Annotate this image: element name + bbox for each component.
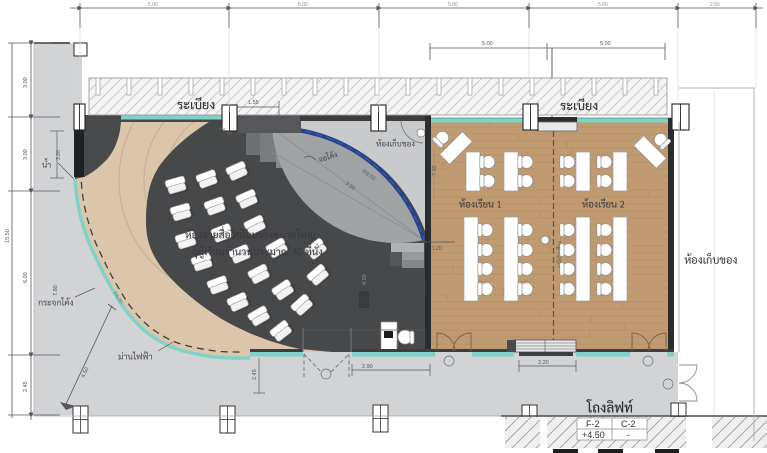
svg-text:6.00: 6.00 [23,272,29,283]
svg-text:2.55: 2.55 [710,2,720,8]
svg-text:1.20: 1.20 [432,246,442,252]
svg-text:7.00: 7.00 [432,165,438,176]
svg-text:2.45: 2.45 [23,381,29,392]
svg-text:3.00: 3.00 [23,77,29,88]
svg-text:15.50: 15.50 [5,229,11,243]
svg-text:C-2: C-2 [621,419,636,429]
svg-text:5.00: 5.00 [448,2,458,8]
svg-text:3.20: 3.20 [56,150,62,160]
svg-text:3.00: 3.00 [23,149,29,160]
svg-text:5.00: 5.00 [598,2,608,8]
svg-text:4.50: 4.50 [362,274,368,285]
svg-text:7.80: 7.80 [53,285,59,296]
svg-text:5.00: 5.00 [600,41,611,47]
svg-text:+4.50: +4.50 [582,430,605,440]
svg-text:5.00: 5.00 [298,2,308,8]
svg-text:2.45: 2.45 [252,369,258,380]
svg-text:F-2: F-2 [586,419,600,429]
svg-text:2.20: 2.20 [538,360,549,366]
svg-text:2.90: 2.90 [362,364,373,370]
svg-text:-: - [627,430,630,440]
svg-text:5.00: 5.00 [148,2,158,8]
svg-text:5.00: 5.00 [482,41,493,47]
svg-text:1.55: 1.55 [248,100,259,106]
